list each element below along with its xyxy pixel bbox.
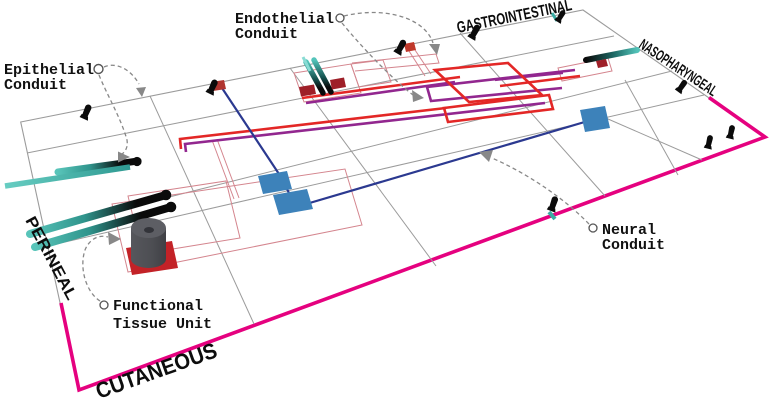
svg-text:Tissue Unit: Tissue Unit (113, 316, 212, 333)
svg-text:Conduit: Conduit (4, 77, 67, 94)
svg-text:Conduit: Conduit (235, 26, 298, 43)
svg-text:Functional: Functional (113, 298, 203, 315)
svg-text:Conduit: Conduit (602, 237, 665, 254)
